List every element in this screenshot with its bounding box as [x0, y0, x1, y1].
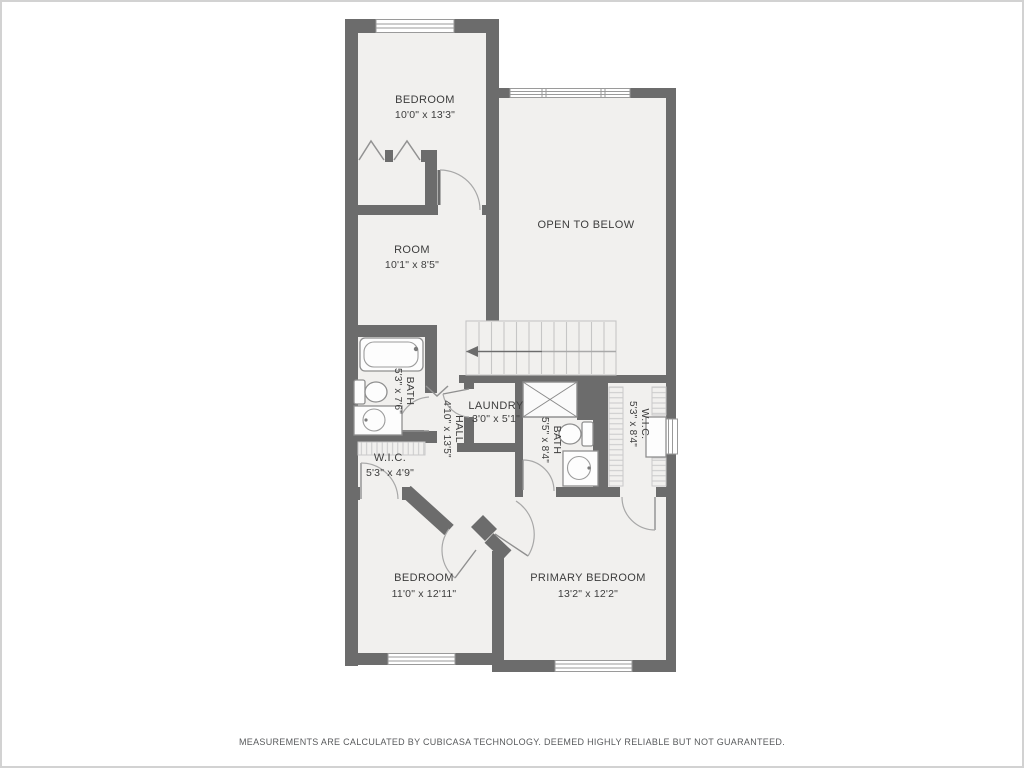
closet-shelf-wic-right-left-band	[609, 387, 623, 486]
disclaimer-text: MEASUREMENTS ARE CALCULATED BY CUBICASA …	[239, 737, 785, 747]
wic-right-dims: 5'3" x 8'4"	[627, 401, 638, 447]
room-dims-bedroom-top: 10'0" x 13'3"	[395, 109, 455, 121]
room-dims-bedroom-bottom: 11'0" x 12'11"	[392, 588, 457, 600]
toilet-middle	[559, 422, 593, 446]
bath-left-dims: 5'3" x 7'6"	[392, 368, 403, 414]
window-open-below	[510, 89, 630, 98]
room-label-bedroom-bottom: BEDROOM	[394, 572, 454, 584]
floor-plan: BEDROOM 10'0" x 13'3" OPEN TO BELOW ROOM…	[0, 0, 1024, 768]
bathtub	[360, 338, 423, 371]
sink-middle	[563, 451, 598, 486]
room-dims-wic-left: 5'3" x 4'9"	[366, 467, 414, 479]
room-label-bedroom-top: BEDROOM	[395, 94, 455, 106]
linen-closet-x	[523, 382, 577, 417]
room-dims-laundry: 3'0" x 5'1"	[472, 413, 520, 425]
bath-left-name: BATH	[404, 377, 416, 406]
bath-middle-name: BATH	[551, 426, 563, 455]
wic-right-name: W.I.C.	[639, 409, 651, 440]
bath-middle-dims: 5'5" x 8'4"	[539, 417, 550, 463]
hall-dims: 4'10" x 13'5"	[441, 400, 452, 458]
window-bedroom-top	[376, 20, 454, 33]
window-primary	[555, 661, 632, 672]
toilet-left	[354, 380, 387, 404]
hall-name: HALL	[453, 415, 465, 443]
window-bedroom-bottom	[388, 654, 455, 665]
room-dims-room: 10'1" x 8'5"	[385, 259, 439, 271]
room-label-wic-left: W.I.C.	[374, 452, 406, 464]
room-label-laundry: LAUNDRY	[468, 400, 523, 412]
room-label-room: ROOM	[394, 244, 430, 256]
room-label-open-to-below: OPEN TO BELOW	[537, 219, 634, 231]
room-label-primary-bedroom: PRIMARY BEDROOM	[530, 572, 646, 584]
room-dims-primary-bedroom: 13'2" x 12'2"	[558, 588, 618, 600]
